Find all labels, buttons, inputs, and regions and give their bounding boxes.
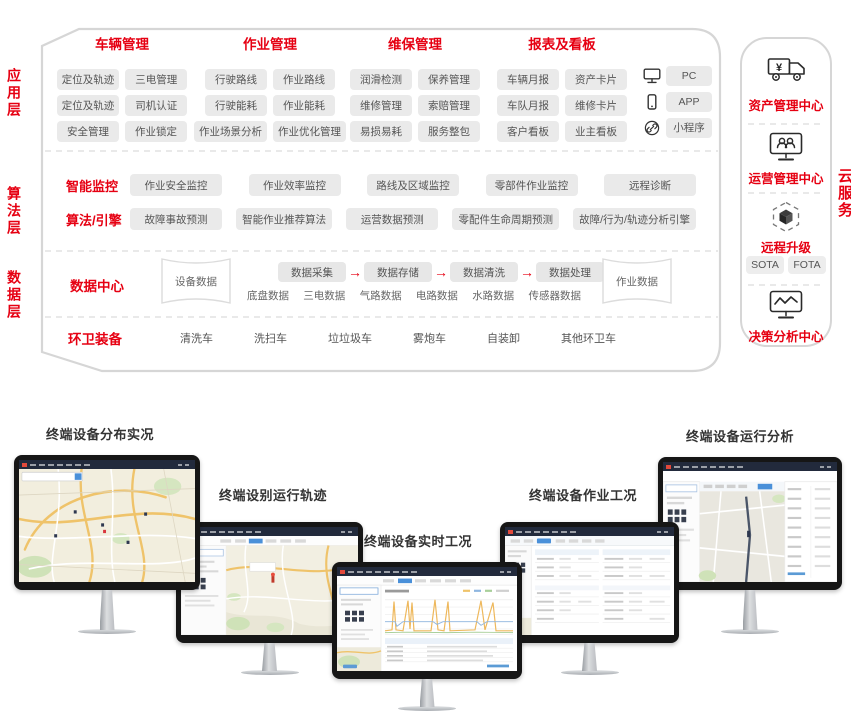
platform-chip: APP xyxy=(666,92,712,112)
app-chip: 安全管理 xyxy=(57,121,119,142)
app-chip: 定位及轨迹 xyxy=(57,69,120,90)
monitor-bezel xyxy=(14,455,200,590)
monitor-bezel xyxy=(332,562,522,679)
algo-row-engines: 算法/引擎 故障事故预测 智能作业推荐算法 运营数据预测 零配件生命周期预测 故… xyxy=(66,208,696,230)
app-chip: 作业路线 xyxy=(273,69,335,90)
cloud-section-label: 决策分析中心 xyxy=(741,326,831,345)
algo-chip: 零配件生命周期预测 xyxy=(452,208,559,230)
monitor-bezel xyxy=(658,457,842,590)
smartphone-icon xyxy=(643,94,661,110)
data-source: 电路数据 xyxy=(416,288,458,303)
chip-row: 定位及轨迹 司机认证 xyxy=(57,95,188,116)
algo-row-monitoring: 智能监控 作业安全监控 作业效率监控 路线及区域监控 零部件作业监控 远程诊断 xyxy=(66,174,696,196)
monitor-title: 终端设备作业工况 xyxy=(529,485,637,504)
cloud-section-label: 资产管理中心 xyxy=(741,95,831,114)
monitor-title: 终端设备实时工况 xyxy=(364,531,472,550)
screen-navbar xyxy=(337,567,517,576)
algo-chip: 故障/行为/轨迹分析引擎 xyxy=(573,208,696,230)
app-chip: 作业能耗 xyxy=(273,95,335,116)
group-title: 报表及看板 xyxy=(528,37,596,53)
group-maintenance-mgmt: 维保管理 润滑检测 保养管理 维修管理 索赔管理 易损易耗 服务整包 xyxy=(346,37,484,142)
screen-navbar xyxy=(663,462,837,471)
chip-row: 行驶能耗 作业能耗 xyxy=(205,95,335,116)
screen-navbar xyxy=(19,460,195,469)
algo-chip: 运营数据预测 xyxy=(346,208,438,230)
data-sources: 底盘数据 三电数据 气路数据 电路数据 水路数据 传感器数据 xyxy=(247,288,581,303)
flow-arrow: → xyxy=(434,262,448,282)
flow-arrow: → xyxy=(348,262,362,282)
app-chip: 作业场景分析 xyxy=(194,121,267,142)
platform-list: PC APP 小程序 xyxy=(643,65,712,138)
app-chip: 作业锁定 xyxy=(125,121,187,142)
logo-mark xyxy=(22,463,27,467)
algo-chip: 智能作业推荐算法 xyxy=(236,208,332,230)
link-icon xyxy=(643,120,661,136)
cloud-section-label: 远程升级 xyxy=(741,237,831,256)
chip-row: 作业场景分析 作业优化管理 xyxy=(194,121,346,142)
ota-chip: FOTA xyxy=(788,256,826,274)
monitor-analysis xyxy=(658,457,842,634)
flow-step-chip: 数据处理 xyxy=(536,262,604,282)
monitor-realtime xyxy=(332,562,522,711)
equipment-list: 清洗车 洗扫车 垃垃圾车 雾炮车 自装卸 其他环卫车 xyxy=(180,330,616,346)
cloud-services-label: 云服务 xyxy=(834,168,851,219)
chip-row: 润滑检测 保养管理 xyxy=(350,69,480,90)
app-chip: 定位及轨迹 xyxy=(57,95,120,116)
equipment-item: 雾炮车 xyxy=(413,330,446,346)
screen-table-art xyxy=(505,536,674,635)
platform-row: 小程序 xyxy=(643,117,712,138)
algo-row-title: 算法/引擎 xyxy=(66,210,130,229)
app-chip: 服务整包 xyxy=(418,121,480,142)
page: 应用层 算法层 数据层 车辆管理 定位及轨迹 三电管理 定位及轨迹 司机认证 安… xyxy=(0,0,851,715)
app-chip: 润滑检测 xyxy=(350,69,412,90)
app-chip: 三电管理 xyxy=(125,69,187,90)
monitor-chart-icon xyxy=(769,290,803,320)
app-chip: 行驶能耗 xyxy=(205,95,267,116)
chip-row: 作业安全监控 作业效率监控 路线及区域监控 零部件作业监控 远程诊断 xyxy=(130,174,696,196)
equipment-item: 垃垃圾车 xyxy=(328,330,372,346)
app-chip: 客户看板 xyxy=(497,121,559,142)
chip-row: 行驶路线 作业路线 xyxy=(205,69,335,90)
flow-arrow: → xyxy=(520,262,534,282)
app-chip: 车队月报 xyxy=(497,95,559,116)
platform-chip: PC xyxy=(666,66,712,86)
monitor-bezel xyxy=(500,522,679,643)
algo-chip: 故障事故预测 xyxy=(130,208,222,230)
job-data-store: 作业数据 xyxy=(600,252,674,310)
monitor-title: 终端设备运行分析 xyxy=(686,426,794,445)
group-operation-mgmt: 作业管理 行驶路线 作业路线 行驶能耗 作业能耗 作业场景分析 作业优化管理 xyxy=(198,37,342,142)
truck-yen-icon: ¥ xyxy=(767,55,807,85)
device-data-store: 设备数据 xyxy=(159,252,233,310)
app-chip: 行驶路线 xyxy=(205,69,267,90)
layer-label-algorithm: 算法层 xyxy=(4,186,24,237)
svg-text:¥: ¥ xyxy=(776,62,783,74)
layer-label-application: 应用层 xyxy=(4,68,24,119)
app-chip: 索赔管理 xyxy=(418,95,480,116)
algo-chip: 零部件作业监控 xyxy=(486,174,578,196)
store-label: 作业数据 xyxy=(600,252,674,310)
data-source: 底盘数据 xyxy=(247,288,289,303)
pc-icon xyxy=(643,68,661,84)
algo-chip: 远程诊断 xyxy=(604,174,696,196)
data-source: 三电数据 xyxy=(303,288,345,303)
app-chip: 资产卡片 xyxy=(565,69,627,90)
logo-mark xyxy=(508,530,513,534)
algo-chip: 作业安全监控 xyxy=(130,174,222,196)
app-chip: 维修管理 xyxy=(350,95,412,116)
screen-chart-art xyxy=(337,576,517,671)
app-chip: 车辆月报 xyxy=(497,69,559,90)
screen-analysis-art xyxy=(663,471,837,582)
equipment-item: 清洗车 xyxy=(180,330,213,346)
screen-navbar xyxy=(505,527,674,536)
monitor-title: 终端设备分布实况 xyxy=(46,424,154,443)
chip-row: 维修管理 索赔管理 xyxy=(350,95,480,116)
app-chip: 业主看板 xyxy=(565,121,627,142)
ota-chip-row: SOTA FOTA xyxy=(741,256,831,274)
monitor-jobs-table xyxy=(500,522,679,675)
monitor-distribution xyxy=(14,455,200,634)
group-vehicle-mgmt: 车辆管理 定位及轨迹 三电管理 定位及轨迹 司机认证 安全管理 作业锁定 xyxy=(50,37,194,142)
data-source: 水路数据 xyxy=(472,288,514,303)
screen-navbar xyxy=(181,527,358,536)
group-title: 作业管理 xyxy=(243,37,297,53)
layer-label-data: 数据层 xyxy=(4,270,24,321)
algo-chip: 路线及区域监控 xyxy=(367,174,459,196)
app-chip: 司机认证 xyxy=(125,95,187,116)
data-flow: 数据采集 → 数据存储 → 数据清洗 → 数据处理 xyxy=(278,262,604,282)
group-title: 维保管理 xyxy=(388,37,442,53)
group-title: 车辆管理 xyxy=(95,37,149,53)
chip-row: 车辆月报 资产卡片 xyxy=(497,69,627,90)
logo-mark xyxy=(340,570,345,574)
platform-row: APP xyxy=(643,91,712,112)
app-chip: 易损易耗 xyxy=(350,121,412,142)
flow-step-chip: 数据采集 xyxy=(278,262,346,282)
chip-row: 易损易耗 服务整包 xyxy=(350,121,480,142)
chip-row: 车队月报 维修卡片 xyxy=(497,95,627,116)
app-chip: 维修卡片 xyxy=(565,95,627,116)
app-chip: 作业优化管理 xyxy=(273,121,346,142)
algo-row-title: 智能监控 xyxy=(66,176,130,195)
data-center-title: 数据中心 xyxy=(70,275,124,295)
platform-chip: 小程序 xyxy=(666,118,712,138)
equipment-item: 其他环卫车 xyxy=(561,330,616,346)
algo-chip: 作业效率监控 xyxy=(249,174,341,196)
chip-row: 客户看板 业主看板 xyxy=(497,121,627,142)
equipment-item: 自装卸 xyxy=(487,330,520,346)
monitor-title: 终端设别运行轨迹 xyxy=(219,485,327,504)
equipment-title: 环卫装备 xyxy=(68,328,122,348)
data-source: 传感器数据 xyxy=(528,288,581,303)
flow-step-chip: 数据存储 xyxy=(364,262,432,282)
chip-row: 安全管理 作业锁定 xyxy=(57,121,187,142)
cloud-section-label: 运营管理中心 xyxy=(741,168,831,187)
ota-chip: SOTA xyxy=(746,256,784,274)
screen-map-art xyxy=(19,469,195,582)
group-report-dashboard: 报表及看板 车辆月报 资产卡片 车队月报 维修卡片 客户看板 业主看板 xyxy=(490,37,634,142)
flow-step-chip: 数据清洗 xyxy=(450,262,518,282)
monitor-users-icon xyxy=(769,132,803,162)
platform-row: PC xyxy=(643,65,712,86)
app-chip: 保养管理 xyxy=(418,69,480,90)
ota-cube-icon xyxy=(769,200,803,234)
equipment-item: 洗扫车 xyxy=(254,330,287,346)
logo-mark xyxy=(666,465,671,469)
data-source: 气路数据 xyxy=(360,288,402,303)
store-label: 设备数据 xyxy=(159,252,233,310)
chip-row: 定位及轨迹 三电管理 xyxy=(57,69,188,90)
chip-row: 故障事故预测 智能作业推荐算法 运营数据预测 零配件生命周期预测 故障/行为/轨… xyxy=(130,208,696,230)
